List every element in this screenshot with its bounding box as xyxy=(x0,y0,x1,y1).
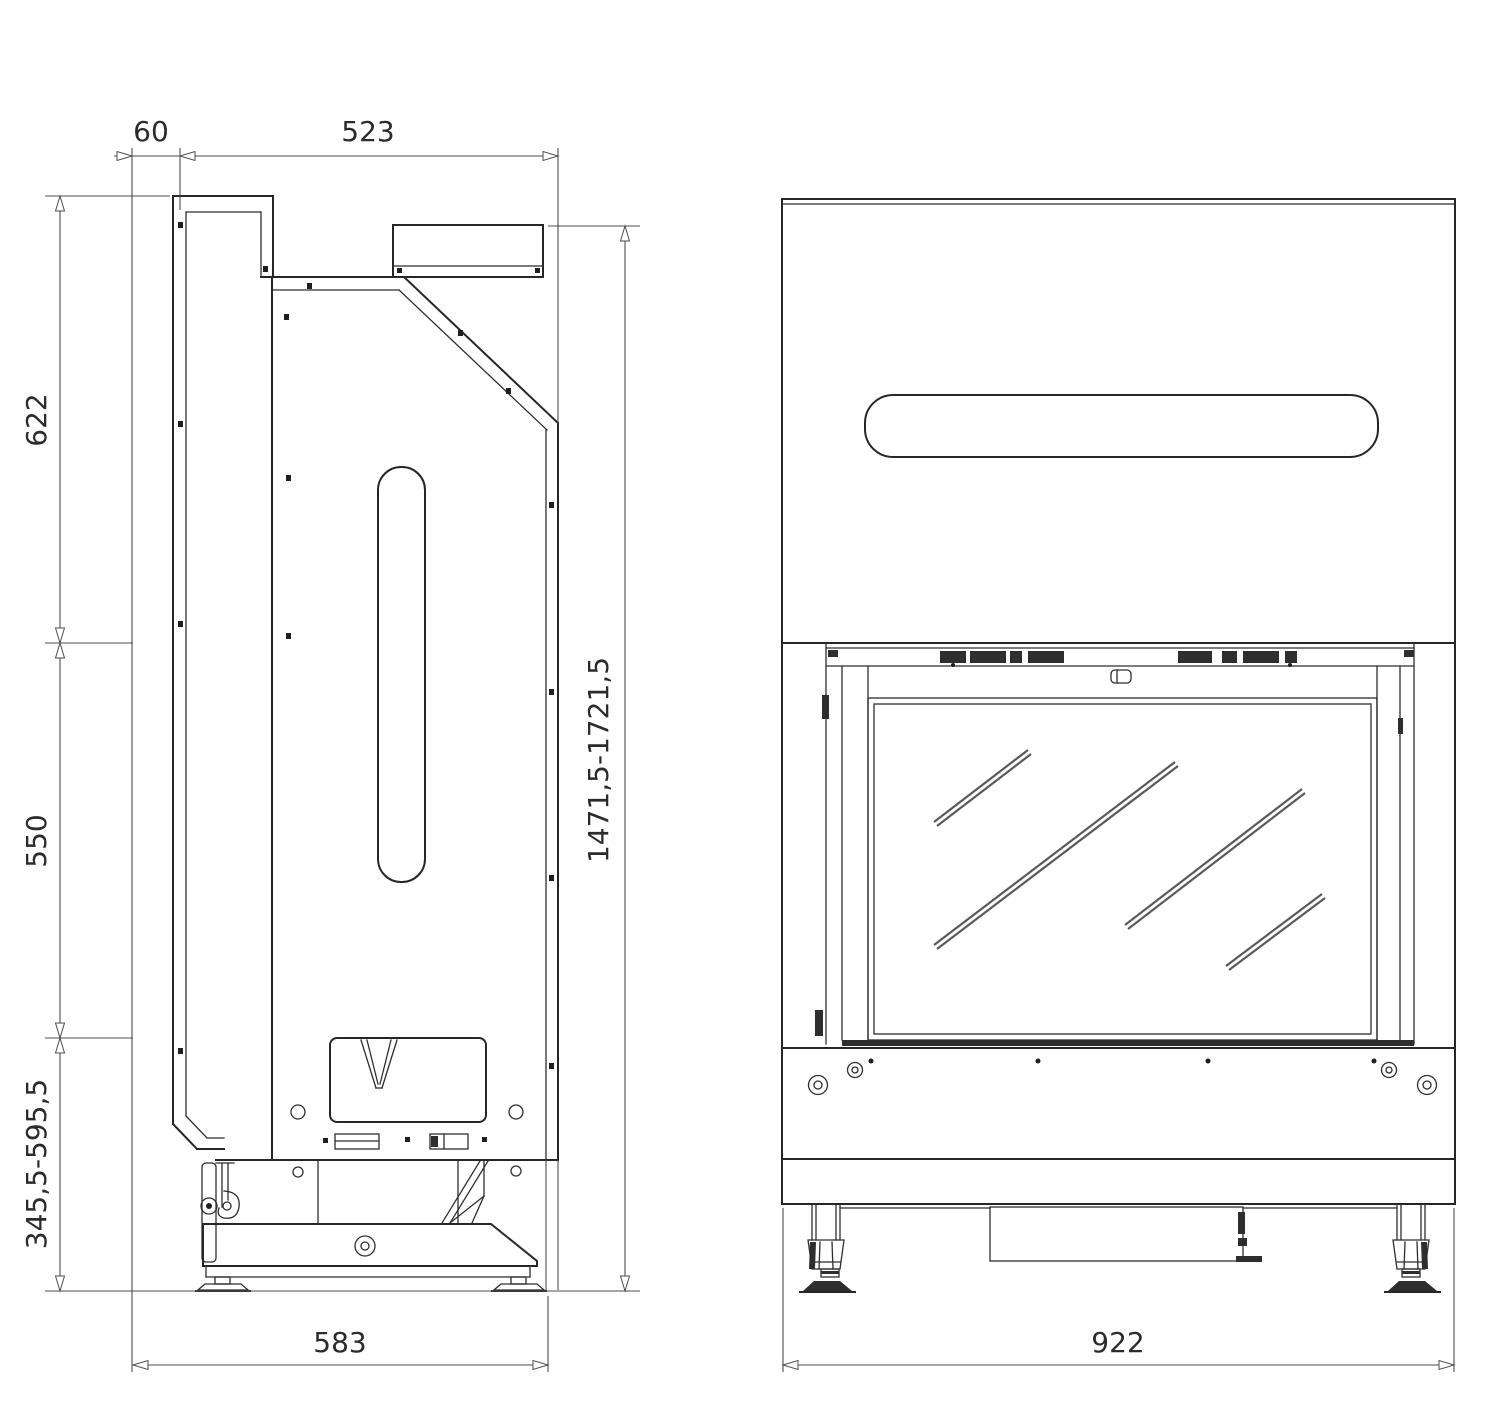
dim-label: 583 xyxy=(313,1326,366,1359)
adjustable-leg xyxy=(1385,1204,1440,1292)
dim-overall-width: 922 xyxy=(783,1208,1454,1372)
dim-label: 523 xyxy=(341,115,394,148)
technical-drawing-page: 60 523 622 550 xyxy=(0,0,1500,1427)
dim-overall-height-range: 1471,5-1721,5 xyxy=(548,226,640,1291)
door-latch-mechanism xyxy=(201,1163,239,1262)
dim-label: 345,5-595,5 xyxy=(20,1079,53,1249)
dimensions: 60 523 622 550 xyxy=(20,115,1454,1372)
lift-door-rail xyxy=(828,650,1414,667)
side-vent-slot xyxy=(378,467,425,882)
firebox-side-profile xyxy=(261,225,558,1160)
fireplace-dimension-drawing: 60 523 622 550 xyxy=(0,0,1500,1427)
front-view xyxy=(782,199,1455,1292)
adjustable-leg xyxy=(800,1204,855,1292)
base-pedestal xyxy=(196,1160,558,1291)
dim-middle-section-height: 550 xyxy=(20,643,133,1038)
dim-rear-gap: 60 xyxy=(114,115,180,161)
glass-door xyxy=(782,698,1455,1048)
glass-reflections xyxy=(934,750,1325,970)
side-view xyxy=(173,196,558,1291)
adjustable-foot xyxy=(196,1277,250,1291)
front-plinth xyxy=(782,1059,1455,1205)
front-vent-slot xyxy=(865,395,1378,457)
rear-panel xyxy=(173,196,273,1149)
dim-label: 60 xyxy=(133,115,169,148)
door-clip xyxy=(1111,670,1131,683)
dim-label: 622 xyxy=(20,393,53,446)
front-hood xyxy=(782,199,1455,1204)
lower-panel xyxy=(291,1038,523,1149)
dim-base-height-range: 345,5-595,5 xyxy=(20,1038,65,1291)
dim-label: 550 xyxy=(20,814,53,867)
flue-collar xyxy=(393,225,543,277)
dim-label: 1471,5-1721,5 xyxy=(582,657,615,863)
dim-overall-depth: 583 xyxy=(133,1296,548,1372)
dim-label: 922 xyxy=(1091,1326,1144,1359)
door-frame xyxy=(815,643,1414,1044)
adjustable-foot xyxy=(492,1277,546,1291)
ash-box xyxy=(990,1207,1262,1262)
dim-upper-section-height: 622 xyxy=(20,196,170,643)
front-base xyxy=(800,1204,1440,1292)
dim-body-depth: 523 xyxy=(180,115,558,161)
